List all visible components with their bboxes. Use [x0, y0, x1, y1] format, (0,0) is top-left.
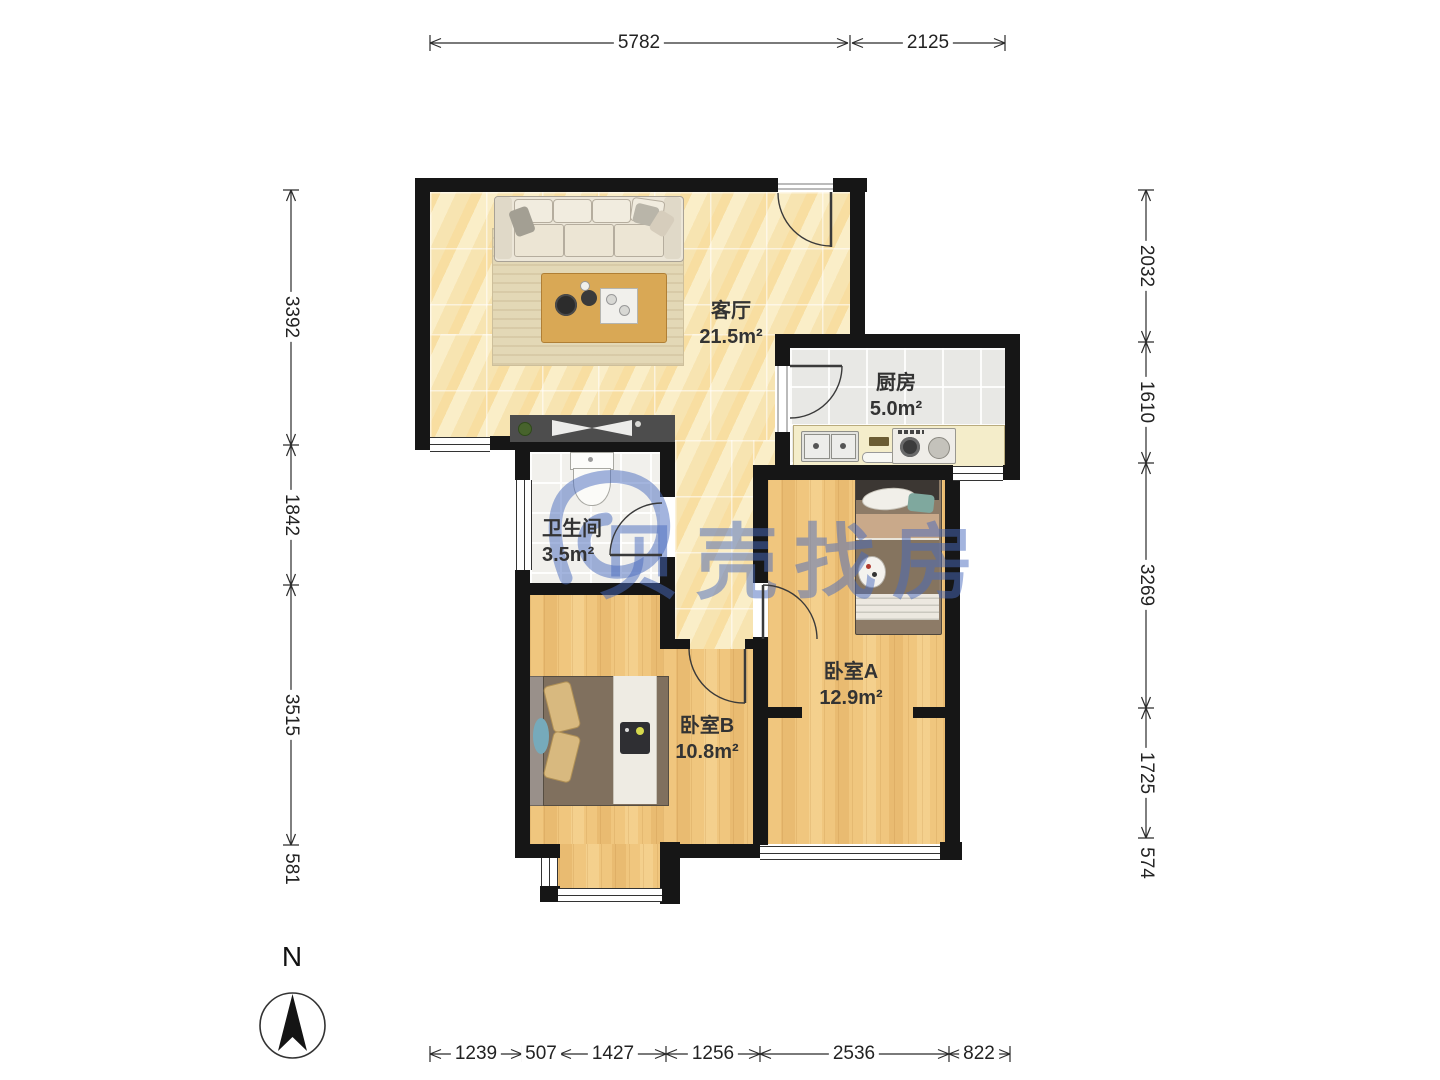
dim-label: 1256: [688, 1043, 738, 1065]
hallway-floor-patch: [753, 440, 775, 465]
hallway-floor: [675, 440, 753, 649]
room-name: 卫生间: [542, 516, 602, 542]
room-label-bedroom-b: 卧室B 10.8m²: [675, 713, 738, 765]
bed-a-sheet: [856, 514, 939, 538]
dim-label: 1610: [1135, 377, 1157, 427]
dim-label: 574: [1135, 843, 1157, 883]
stove-burner: [900, 437, 920, 457]
dim-label: 507: [521, 1043, 561, 1065]
compass-north-label: N: [282, 941, 302, 973]
plant: [518, 422, 532, 436]
bed-a-tray-dot: [866, 564, 871, 569]
dim-label: 3392: [280, 292, 302, 342]
dim-label: 1239: [451, 1043, 501, 1065]
dim-label: 2536: [829, 1043, 879, 1065]
dim-label: 1427: [588, 1043, 638, 1065]
dim-label: 581: [280, 849, 302, 889]
window: [953, 466, 1003, 481]
dim-label: 2125: [903, 32, 953, 54]
wall: [1005, 334, 1020, 480]
wall: [515, 570, 530, 858]
window: [516, 480, 532, 570]
window: [558, 888, 662, 902]
wall: [753, 637, 768, 845]
wall: [415, 178, 430, 450]
bedroom-b-bay-floor: [545, 844, 660, 888]
dim-label: 3515: [280, 690, 302, 740]
room-area: 5.0m²: [870, 396, 922, 422]
teapot: [581, 290, 597, 306]
wall: [415, 178, 778, 192]
stove-knob-row: [898, 430, 924, 434]
wall: [415, 436, 430, 450]
room-label-bathroom: 卫生间 3.5m²: [542, 516, 602, 568]
room-label-living: 客厅 21.5m²: [699, 298, 762, 350]
tv-icon: [540, 417, 645, 440]
wall: [760, 707, 802, 718]
room-label-bedroom-a: 卧室A 12.9m²: [819, 659, 882, 711]
room-area: 21.5m²: [699, 324, 762, 350]
wall: [515, 583, 665, 595]
wall: [680, 844, 760, 858]
room-name: 卧室B: [675, 713, 738, 739]
wall: [660, 557, 675, 649]
compass-icon: [260, 993, 325, 1058]
bed-b-tray-dot: [625, 728, 629, 732]
sofa-armrest-left: [495, 197, 512, 259]
toilet-button: [588, 457, 593, 462]
window: [430, 437, 490, 452]
kettle: [555, 294, 577, 316]
wall: [850, 334, 1020, 348]
wall: [660, 639, 690, 649]
window: [541, 858, 558, 886]
bed-b-accent-pillow: [533, 718, 549, 754]
bed-b-tray-dot: [636, 727, 644, 735]
wall: [775, 432, 790, 480]
bed-a-accent-pillow: [907, 493, 935, 514]
bed-a-tray-dot: [872, 572, 877, 577]
wall: [660, 842, 680, 904]
wall: [753, 465, 768, 583]
bed-a-foot-sheet: [856, 594, 939, 620]
sofa-seat-cushion: [564, 224, 614, 257]
dim-label: 3269: [1135, 560, 1157, 610]
dim-label: 822: [959, 1043, 999, 1065]
room-area: 10.8m²: [675, 739, 738, 765]
room-area: 3.5m²: [542, 542, 602, 568]
room-name: 卧室A: [819, 659, 882, 685]
wall: [850, 178, 865, 348]
wall: [945, 470, 960, 844]
sink-drain: [813, 443, 819, 449]
room-area: 12.9m²: [819, 685, 882, 711]
room-name: 客厅: [699, 298, 762, 324]
tray-cup: [606, 294, 617, 305]
wall: [540, 886, 560, 902]
window: [760, 846, 940, 860]
bed-b-tray: [620, 722, 650, 754]
cup: [580, 281, 590, 291]
room-name: 厨房: [870, 370, 922, 396]
sofa-back-cushion: [592, 199, 631, 223]
sofa-back-cushion: [553, 199, 592, 223]
tray: [600, 288, 638, 324]
dim-label: 1725: [1135, 748, 1157, 798]
dim-label: 1842: [280, 490, 302, 540]
wall: [660, 440, 675, 497]
wall: [913, 707, 945, 718]
floorplan-canvas: 贝壳找房 客厅 21.5m² 厨房 5.0m² 卫生间 3.5m² 卧室A 12…: [0, 0, 1440, 1080]
tray-cup: [619, 305, 630, 316]
stove-burner: [928, 437, 950, 459]
room-label-kitchen: 厨房 5.0m²: [870, 370, 922, 422]
kitchen-control-panel: [869, 437, 889, 446]
wall: [940, 842, 962, 860]
sink-drain: [840, 443, 846, 449]
wall: [775, 334, 790, 366]
dim-label: 5782: [614, 32, 664, 54]
wall: [515, 844, 560, 858]
dim-label: 2032: [1135, 241, 1157, 291]
